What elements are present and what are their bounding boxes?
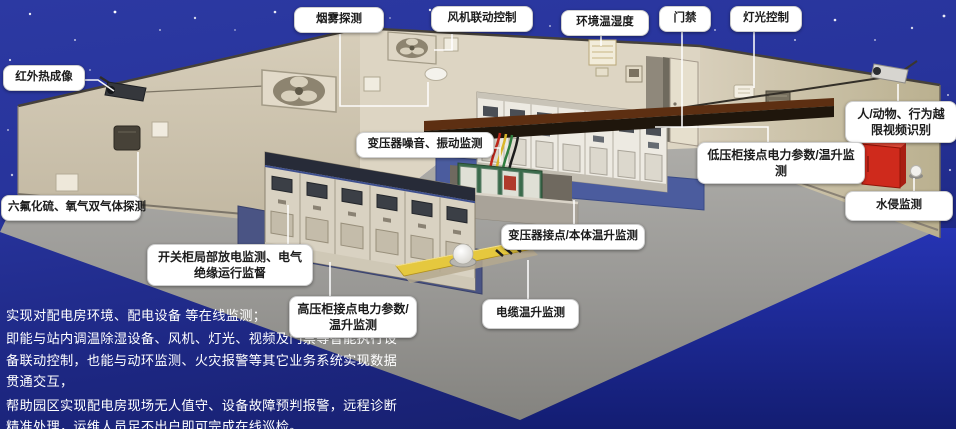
callout-light-control: 灯光控制 [730,6,802,32]
callout-gas-detection: 六氟化硫、氧气双气体探测 [1,195,141,221]
power-room-monitoring-diagram: 烟雾探测 风机联动控制 环境温湿度 门禁 灯光控制 红外热成像 人/动物、行为越… [0,0,956,429]
callout-cable-temp-rise: 电缆温升监测 [482,299,579,329]
fire-cabinet [862,139,906,188]
callout-env-temp-humidity: 环境温湿度 [561,10,649,36]
description-line-3: 帮助园区实现配电房现场无人值守、设备故障预判报警，远程诊断精准处理，运维人员足不… [6,395,400,429]
callout-transformer-contact-temp: 变压器接点/本体温升监测 [501,224,645,250]
callout-water-intrusion: 水侵监测 [845,191,953,221]
callout-transformer-noise-vibration: 变压器噪音、振动监测 [356,132,494,158]
callout-hv-cabinet-monitoring: 高压柜接点电力参数/温升监测 [289,296,417,338]
callout-door-access: 门禁 [659,6,711,32]
callout-fan-linkage-control: 风机联动控制 [431,6,533,32]
light-switch [734,85,754,98]
callout-switchgear-partial-discharge: 开关柜局部放电监测、电气绝缘运行监督 [147,244,313,286]
callout-lv-cabinet-monitoring: 低压柜接点电力参数/温升监测 [697,142,865,184]
callout-smoke-detection: 烟雾探测 [294,7,384,33]
callout-infrared-thermal: 红外热成像 [3,65,85,91]
callout-person-animal-recognition: 人/动物、行为越限视频识别 [845,101,956,143]
